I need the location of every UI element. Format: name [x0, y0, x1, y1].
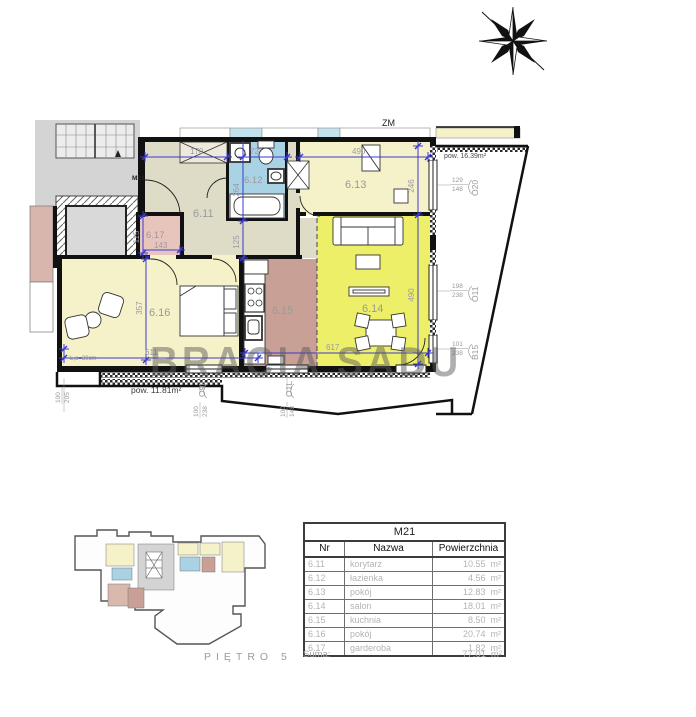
unit-label: M21 [132, 175, 145, 182]
svg-text:B15: B15 [470, 345, 480, 360]
room-label-612: 6.12 [244, 175, 263, 186]
zm-label: ZM [382, 118, 395, 128]
dim-170: 170 [190, 147, 204, 156]
sum-value: 77.01m² [462, 649, 502, 660]
door-gap [212, 255, 236, 259]
dim-72: 72 [250, 147, 259, 156]
shaft-crossed-box [287, 161, 309, 189]
lintel-note: L,o=30cm [70, 356, 97, 362]
table-row: 6.12 łazienka 4.56m² [305, 572, 504, 586]
dim-490-right: 490 [407, 288, 416, 302]
table-sum-row: Suma: 77.01m² [303, 649, 502, 660]
table-row: 6.14 salon 18.01m² [305, 600, 504, 614]
watermark-text: BRACIA SADU [150, 338, 462, 385]
col-nazwa: Nazwa [345, 542, 433, 556]
dim-115: 115 [132, 230, 141, 243]
col-nr: Nr [305, 542, 345, 556]
sink [268, 169, 284, 183]
mini-floor-plan [75, 530, 265, 644]
compass-rose-icon [479, 7, 547, 75]
room-label-611: 6.11 [193, 208, 214, 220]
sum-label: Suma: [303, 649, 330, 660]
dim-264: 264 [232, 183, 241, 197]
room-label-617: 6.17 [146, 230, 165, 241]
svg-text:238: 238 [452, 292, 463, 299]
sofa [333, 217, 403, 245]
coffee-table [356, 255, 380, 269]
svg-text:148: 148 [289, 406, 296, 417]
svg-text:129: 129 [452, 177, 463, 184]
dim-143: 143 [154, 241, 168, 250]
room-label-615: 6.15 [272, 305, 293, 317]
door-gap [150, 255, 176, 259]
svg-text:100: 100 [280, 406, 287, 417]
dim-125: 125 [232, 235, 241, 249]
dim-357: 357 [135, 301, 144, 315]
wardrobe-crossed-box [180, 142, 227, 163]
svg-text:238: 238 [202, 406, 209, 417]
room-label-613: 6.13 [345, 179, 366, 191]
armchair [64, 314, 90, 340]
room-label-616: 6.16 [149, 307, 170, 319]
table-header: Nr Nazwa Powierzchnia [305, 542, 504, 558]
svg-text:148: 148 [452, 186, 463, 193]
adjacent-unit-strip [180, 126, 520, 138]
floor-caption: PIĘTRO [204, 651, 273, 663]
neighbor-left [30, 206, 57, 332]
room-label-614: 6.14 [362, 303, 383, 315]
area-table: M21 Nr Nazwa Powierzchnia 6.11 korytarz … [303, 522, 506, 657]
toilet [258, 141, 274, 164]
svg-text:100: 100 [193, 406, 200, 417]
svg-text:100: 100 [55, 392, 62, 403]
elevator-cab [66, 206, 126, 258]
kitchen-sink [245, 316, 262, 340]
table-row: 6.11 korytarz 10.55m² [305, 558, 504, 572]
table-613 [394, 189, 408, 203]
svg-text:198: 198 [452, 283, 463, 290]
col-powierzchnia: Powierzchnia [433, 542, 504, 556]
table-row: 6.15 kuchnia 8.50m² [305, 614, 504, 628]
floor-plan-sheet: ZM [0, 0, 696, 717]
svg-text:O20: O20 [470, 180, 480, 196]
dim-490-top: 490 [352, 147, 366, 156]
svg-text:205: 205 [64, 392, 71, 403]
bed [180, 286, 238, 336]
table-title: M21 [305, 524, 504, 542]
corridor-neck [300, 218, 317, 258]
tv-cabinet [349, 287, 389, 296]
stove [245, 284, 264, 312]
table-row: 6.16 pokój 20.74m² [305, 628, 504, 642]
floor-number: 5 [281, 651, 287, 663]
dim-246: 246 [407, 179, 416, 193]
table-row: 6.13 pokój 12.83m² [305, 586, 504, 600]
svg-text:O11: O11 [470, 286, 480, 302]
balcony-bottom-area: pow. 11.81m² [131, 385, 182, 395]
balcony-right-area: pow. 16.39m² [444, 153, 487, 160]
